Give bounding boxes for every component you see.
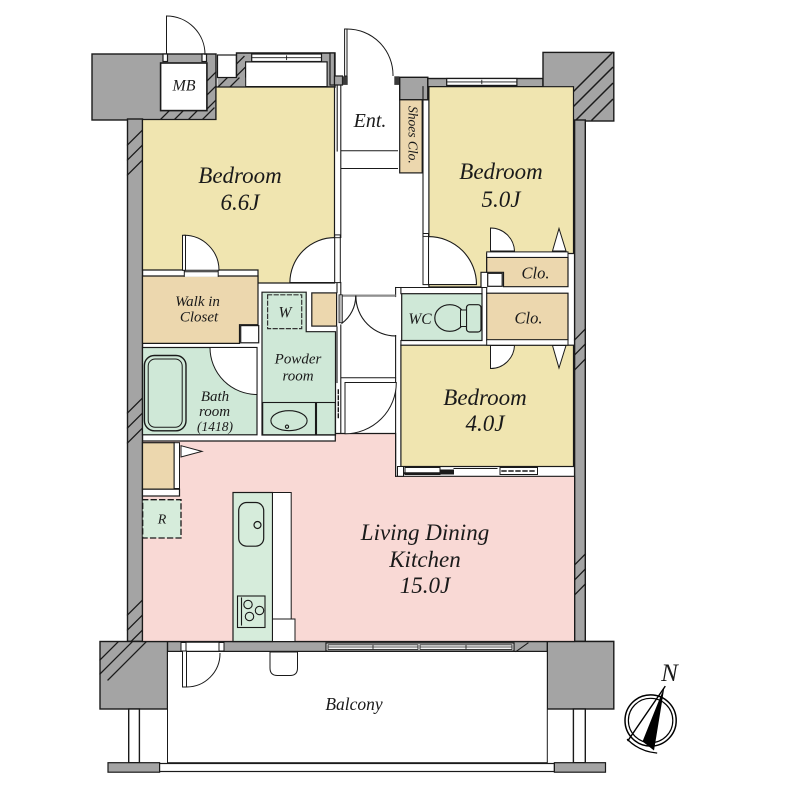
svg-text:Powder: Powder [274,352,322,368]
svg-text:Shoes Clo.: Shoes Clo. [406,106,421,164]
svg-text:room: room [282,369,313,385]
svg-text:Living Dining: Living Dining [360,520,489,545]
svg-text:Bedroom: Bedroom [443,385,526,410]
svg-text:Ent.: Ent. [353,110,387,132]
svg-text:N: N [660,660,679,687]
svg-text:(1418): (1418) [197,419,233,434]
svg-text:Kitchen: Kitchen [388,547,461,572]
svg-text:Clo.: Clo. [522,263,550,282]
svg-text:W: W [279,305,294,322]
svg-text:5.0J: 5.0J [482,187,523,212]
svg-text:Walk in: Walk in [175,294,220,310]
svg-text:6.6J: 6.6J [221,190,262,215]
svg-text:R: R [157,513,167,528]
svg-text:Bath: Bath [201,389,229,405]
svg-text:room: room [199,404,230,420]
svg-text:MB: MB [171,78,195,95]
svg-text:15.0J: 15.0J [400,573,452,598]
svg-text:Bedroom: Bedroom [459,159,542,184]
svg-text:Clo.: Clo. [515,309,543,328]
svg-text:Closet: Closet [180,310,219,326]
svg-text:4.0J: 4.0J [466,411,507,436]
svg-text:Balcony: Balcony [325,694,383,714]
svg-text:WC: WC [408,311,432,328]
svg-text:Bedroom: Bedroom [198,163,281,188]
